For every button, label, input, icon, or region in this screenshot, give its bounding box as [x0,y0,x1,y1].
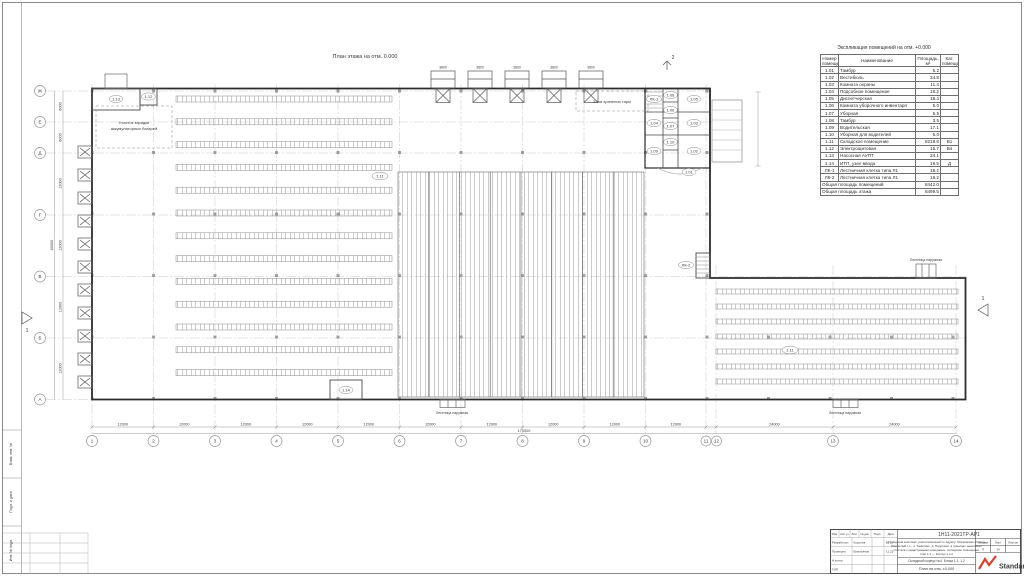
room-tag: 1.11 [376,174,384,179]
explication-header: Наименование [839,55,916,67]
axis-label: 13 [830,439,836,444]
tb-header-col: Изм. [832,532,838,536]
logo-text: Standart [999,564,1024,571]
battery-zone-label: Участок зарядки [119,120,149,125]
table-row: 1.14ИТП, узел ввода19.5Д [821,160,959,167]
dim-label: 12000 [240,423,251,427]
table-row: 1.02Вестибюль34.8 [821,74,959,81]
bottom-axis-bubbles: 1 2 3 4 5 6 7 8 9 10 11 12 13 14 [87,436,962,447]
axis-label: В [38,274,41,279]
tb-role: Разработал [832,541,849,545]
room-category [941,67,959,74]
left-axis-bubbles: Ж Е Д Г В Б А [35,86,46,406]
room-number: 1.10 [821,131,839,138]
tb-header-col: Лист [851,532,858,536]
outside-stair-label: Лестница наружная [829,411,861,415]
tb-header-col: Подп. [874,532,882,536]
room-tag: 1.08 [667,93,676,98]
margin-label: Подп. и дата [9,491,13,512]
room-area: 34.8 [916,74,941,81]
axis-label: 14 [953,439,959,444]
table-row: ЛК-1Лестничная клетка типа Л118.2 [821,167,959,174]
room-area: 5.5 [916,110,941,117]
room-name: Тамбур [839,117,916,124]
dim-label: 12000 [59,178,63,189]
object-name: Складской корпус №4. Блоки 1.1, 1.2 [908,559,965,563]
tb-role: ГИП [832,568,838,572]
room-area: 11.4 [916,81,941,88]
explication-header-row: Номер помещения Наименование Площадь, м²… [821,55,959,67]
total-cat [941,181,959,188]
table-row: 1.05Диспетчерская18.4 [821,95,959,102]
axis-label: Д [38,151,41,156]
total-label: Общая площадь этажа [821,188,916,195]
room-number: 1.08 [821,117,839,124]
tara-zone-label: Зона хранения тары [593,99,631,104]
room-name: Подсобное помещение [839,88,916,95]
room-area: 15.7 [916,145,941,152]
dim-label: 12000 [609,423,620,427]
room-category [941,81,959,88]
total-rooms-row: Общая площадь помещений8442.0 [821,181,959,188]
room-number: ЛК-2 [821,174,839,181]
room-area: 5.0 [916,131,941,138]
table-row: 1.03Комната охраны11.4 [821,81,959,88]
room-number: 1.12 [821,145,839,152]
room-number: ЛК-1 [821,167,839,174]
room-tag: 1.04 [650,121,659,126]
table-row: 1.12Электрощитовая15.7В4 [821,145,959,152]
sheet-number: 14 [996,548,1000,552]
outside-stair-label: Лестница наружная [910,258,942,262]
bottom-dimensions: 12000 12000 12000 12000 12000 12000 1200… [91,423,958,434]
room-category [941,124,959,131]
room-number: 1.09 [821,124,839,131]
dim-label: 12000 [117,423,128,427]
tb-role-name: Емельянов [854,550,870,554]
margin-label: Инв. № подл. [9,539,13,561]
dim-label: 12000 [670,423,681,427]
room-area: 34.1 [916,152,941,159]
room-number: 1.02 [821,74,839,81]
dim-label: 12000 [59,240,63,251]
room-name: Диспетчерская [839,95,916,102]
dim-label: 12000 [59,302,63,313]
total-label: Общая площадь помещений [821,181,916,188]
dim-total-label: 170000 [518,429,531,433]
table-row: 1.06Комната уборочного инвентаря5.0 [821,102,959,109]
dim-label: 12000 [179,423,190,427]
explication-title: Экспликация помещений на отм. +0.000 [818,45,950,51]
room-tag: 1.14 [342,388,351,393]
dim-label: 12000 [425,423,436,427]
total-floor-row: Общая площадь этажа8499.5 [821,188,959,195]
dim-label: 12000 [486,423,497,427]
room-area: 18.4 [916,95,941,102]
room-tag: 1.13 [112,97,121,102]
table-row: 1.09Водительская17.1 [821,124,959,131]
room-category: Д [941,160,959,167]
room-tag: ЛК-1 [650,97,659,102]
table-row: 1.01Тамбур5.2 [821,67,959,74]
table-row: ЛК-2Лестничная клетка типа Л118.2 [821,174,959,181]
stage-header: Лист [995,541,1002,545]
doc-number: 1Н11-2021ТР-АР1 [938,532,980,538]
plan-title: План этажа на отм. 0.000 [333,54,398,60]
room-category [941,152,959,159]
room-category [941,88,959,95]
explication-table: Номер помещения Наименование Площадь, м²… [820,54,959,196]
room-area: 3.5 [916,117,941,124]
tb-header-col: Кол.уч [840,532,849,536]
room-area: 17.1 [916,124,941,131]
room-name: Водительская [839,124,916,131]
room-number: 1.06 [821,102,839,109]
room-area: 18.2 [916,88,941,95]
room-tag: ЛК-2 [682,263,691,268]
room-number: 1.11 [821,138,839,145]
tb-header-col: Дата [888,532,895,536]
room-category [941,131,959,138]
room-tag: 1.05 [690,97,699,102]
outside-stair-label: Лестница наружная [436,411,468,415]
dock-dimension: 3800 [550,66,558,70]
room-area: 19.5 [916,160,941,167]
axis-label: А [38,397,41,402]
docks-left-wall [78,146,92,388]
room-area: 5.0 [916,102,941,109]
axis-label: 12 [714,439,720,444]
room-name: Уборная для водителей [839,131,916,138]
axis-label: Е [38,120,41,125]
dock-dimension: 3800 [439,66,447,70]
section-marker-label: 1 [26,328,29,334]
dim-label: 12000 [302,423,313,427]
room-area: 18.2 [916,167,941,174]
axis-label: 10 [643,439,649,444]
tb-role: Проверил [832,550,846,554]
room-tag: 1.01 [685,170,694,175]
margin-labels: Взам. инв. № Подп. и дата Инв. № подл. [9,443,13,561]
table-row: 1.04Подсобное помещение18.2 [821,88,959,95]
room-name: ИТП, узел ввода [839,160,916,167]
room-number: 1.04 [821,88,839,95]
table-row: 1.11Складское помещение8219.8В1 [821,138,959,145]
total-value: 8499.5 [916,188,941,195]
room-name: Комната охраны [839,81,916,88]
dock-dimension: 3800 [587,66,595,70]
dim-label: 6000 [59,133,63,141]
table-row: 1.10Уборная для водителей5.0 [821,131,959,138]
project-line: этап 1.1 — Корпус 1 и 2 [920,552,953,556]
axis-label: 11 [704,439,709,444]
stage-value: П [982,548,984,552]
tb-header-col: № док. [861,532,870,536]
room-tag: 1.12 [145,94,154,99]
room-tag: 1.09 [650,149,659,154]
dim-label: 12000 [59,363,63,374]
room-name: Вестибюль [839,74,916,81]
dim-label: 12000 [363,423,374,427]
room-category: В4 [941,145,959,152]
room-number: 1.05 [821,95,839,102]
room-tag: 1.02 [690,149,699,154]
stage-header: Листов [1008,541,1018,545]
room-tag: 1.10 [667,140,676,145]
room-number: 1.03 [821,81,839,88]
explication-header: Площадь, м² [916,55,941,67]
tb-role-name: Королев [854,541,866,545]
table-row: 1.07Уборная5.5 [821,110,959,117]
total-cat [941,188,959,195]
room-area: 5.2 [916,67,941,74]
explication-header: Номер помещения [821,55,839,67]
room-area: 8219.8 [916,138,941,145]
room-number: 1.14 [821,160,839,167]
room-name: Складское помещение [839,138,916,145]
title-block: 1Н11-2021ТР-АР1 Изм. Кол.уч Лист № док. … [831,530,1024,574]
table-row: 1.08Тамбур3.5 [821,117,959,124]
room-name: Лестничная клетка типа Л1 [839,174,916,181]
room-tag: 1.03 [690,121,699,126]
room-name: Электрощитовая [839,145,916,152]
room-category [941,102,959,109]
room-area: 18.2 [916,174,941,181]
room-category [941,174,959,181]
dim-label: 12000 [548,423,559,427]
dim-label: 24000 [769,423,780,427]
racking-middle-hall [398,172,644,397]
battery-zone-label: аккумуляторных батарей [111,126,157,131]
tb-role: Н.контр. [832,559,844,563]
room-tag: 1.06 [667,108,676,113]
total-value: 8442.0 [916,181,941,188]
room-tag: 1.07 [667,124,676,129]
sheet-name: План на отм. ±0.000 [919,567,955,571]
room-category [941,117,959,124]
dim-total-label: 60000 [50,240,54,251]
stage-header: Стадия [978,541,989,545]
table-row: 1.13Насосная АУПТ34.1 [821,152,959,159]
dock-dimension: 3800 [476,66,484,70]
room-category [941,167,959,174]
room-category [941,110,959,117]
section-marker-label: 1 [982,296,985,302]
axis-label: Б [39,336,42,341]
room-number: 1.13 [821,152,839,159]
section-marker-label: 2 [672,55,675,61]
room-category [941,95,959,102]
left-dimensions: 6000 6000 12000 12000 12000 12000 60000 [50,91,63,400]
dim-label: 24000 [889,423,900,427]
dim-label: 6000 [59,102,63,110]
room-number: 1.07 [821,110,839,117]
explication-header: Кат. помещения [941,55,959,67]
room-name: Лестничная клетка типа Л1 [839,167,916,174]
room-name: Насосная АУПТ [839,152,916,159]
room-tag: 1.11 [786,348,794,353]
margin-label: Взам. инв. № [9,443,13,465]
room-name: Тамбур [839,67,916,74]
room-name: Уборная [839,110,916,117]
room-category: В1 [941,138,959,145]
room-category [941,74,959,81]
room-number: 1.01 [821,67,839,74]
dock-dimension: 3800 [513,66,521,70]
room-name: Комната уборочного инвентаря [839,102,916,109]
